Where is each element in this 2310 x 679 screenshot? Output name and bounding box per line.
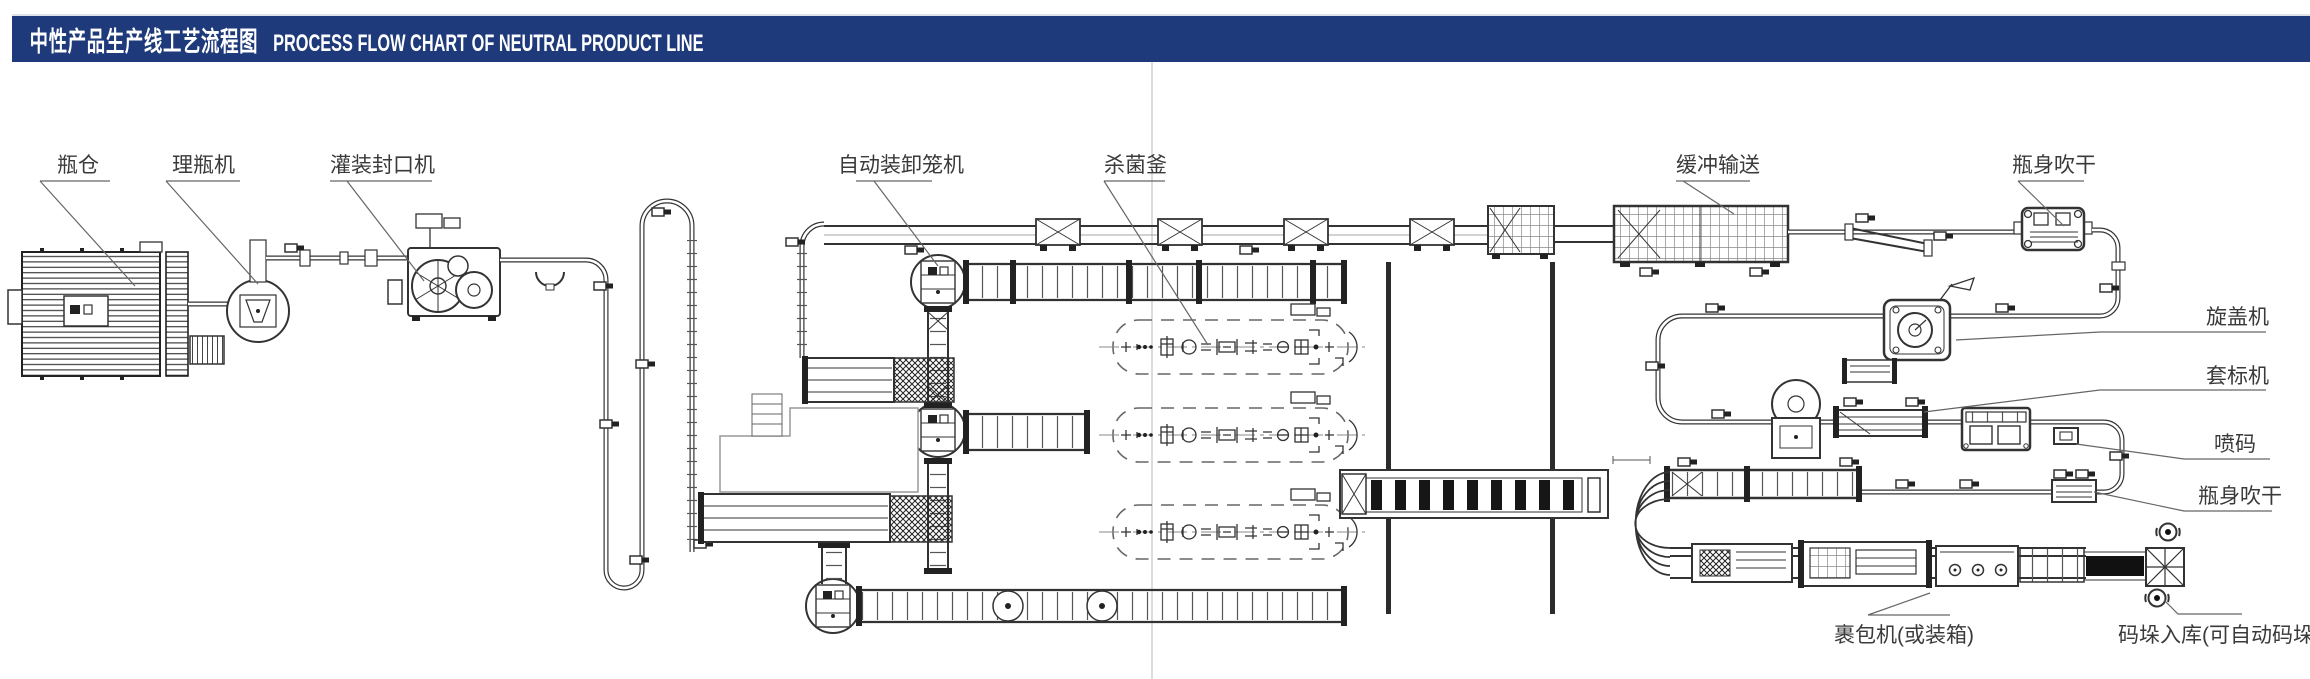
blow-dryer-top-machine xyxy=(2014,208,2092,250)
label-blow-dry-right: 瓶身吹干 xyxy=(2198,485,2282,508)
labeler-outfeed-belt xyxy=(1833,398,1928,438)
inkjet-coder-machine xyxy=(1962,408,2078,450)
label-inkjet-coder: 喷码 xyxy=(2214,433,2256,456)
buffer-to-dryer-line xyxy=(1788,214,2020,256)
label-filler-sealer: 灌装封口机 xyxy=(330,154,435,177)
label-sleeve-labeler: 套标机 xyxy=(2206,365,2269,388)
overhead-transfer-conveyor xyxy=(824,219,1488,254)
bottle-warehouse-machine xyxy=(8,242,224,380)
wrapping-line xyxy=(1670,540,2146,588)
label-blow-dry-top: 瓶身吹干 xyxy=(2012,154,2096,177)
elevator-conveyor xyxy=(786,224,824,358)
label-bottle-warehouse: 瓶仓 xyxy=(57,154,99,177)
serpentine-conveyor xyxy=(500,201,713,588)
cage-loader-area xyxy=(698,255,965,633)
capping-machine xyxy=(1842,278,1974,384)
air-conveyor-infeed xyxy=(266,244,410,266)
unscrambler-machine xyxy=(188,240,289,342)
sleeve-labeler-machine xyxy=(1772,380,1820,458)
label-cage-loader: 自动装卸笼机 xyxy=(838,154,964,177)
blow-dry-right-line xyxy=(1862,470,2104,502)
label-buffer-conveyor: 缓冲输送 xyxy=(1676,154,1760,177)
dryer-to-capper-loop xyxy=(2092,230,2125,316)
filler-sealer-machine xyxy=(388,214,500,321)
wall-lines xyxy=(1386,262,1555,614)
flow-chart-page: 中性产品生产线工艺流程图 PROCESS FLOW CHART OF NEUTR… xyxy=(0,0,2310,679)
label-sterilizer: 杀菌釜 xyxy=(1104,154,1167,177)
label-capping-machine: 旋盖机 xyxy=(2206,306,2269,329)
label-wrapper: 裹包机(或装箱) xyxy=(1834,624,1974,647)
label-unscrambler: 理瓶机 xyxy=(172,154,235,177)
process-flow-drawing: 瓶仓 理瓶机 灌装封口机 自动装卸笼机 杀菌釜 缓冲输送 瓶身吹干 旋盖机 套标… xyxy=(0,0,2310,679)
label-palletizing: 码垛入库(可自动码垛) xyxy=(2118,624,2310,647)
palletizer-machine xyxy=(2145,524,2184,607)
buffer-conveyor-machine xyxy=(1488,206,1788,276)
sterilizer-kettles xyxy=(1099,304,1365,559)
capper-to-labeler-loop xyxy=(1646,316,1682,422)
